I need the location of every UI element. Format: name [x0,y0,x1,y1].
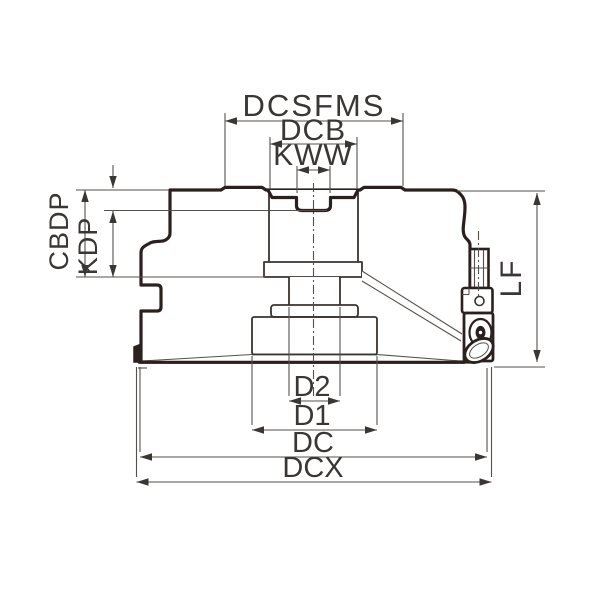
label-kdp: KDP [73,217,103,276]
label-cbdp: CBDP [44,191,74,270]
left-insert-edge [134,345,139,362]
insert-assembly [460,231,497,368]
label-dcx: DCX [282,452,343,484]
screw-center-dot [479,331,482,334]
spindle-neck [290,277,339,305]
clamp-screw [475,297,484,306]
label-lf: LF [495,258,528,297]
label-kww: KWW [273,139,353,172]
label-d2: D2 [293,371,330,403]
mounting-base [252,317,377,355]
lower-flange [271,305,358,317]
milling-cutter-diagram: DCSFMS DCB KWW CBDP KDP LF D2 D1 DC DCX [0,0,600,600]
technical-drawing-canvas: DCSFMS DCB KWW CBDP KDP LF D2 D1 DC DCX [0,0,600,600]
